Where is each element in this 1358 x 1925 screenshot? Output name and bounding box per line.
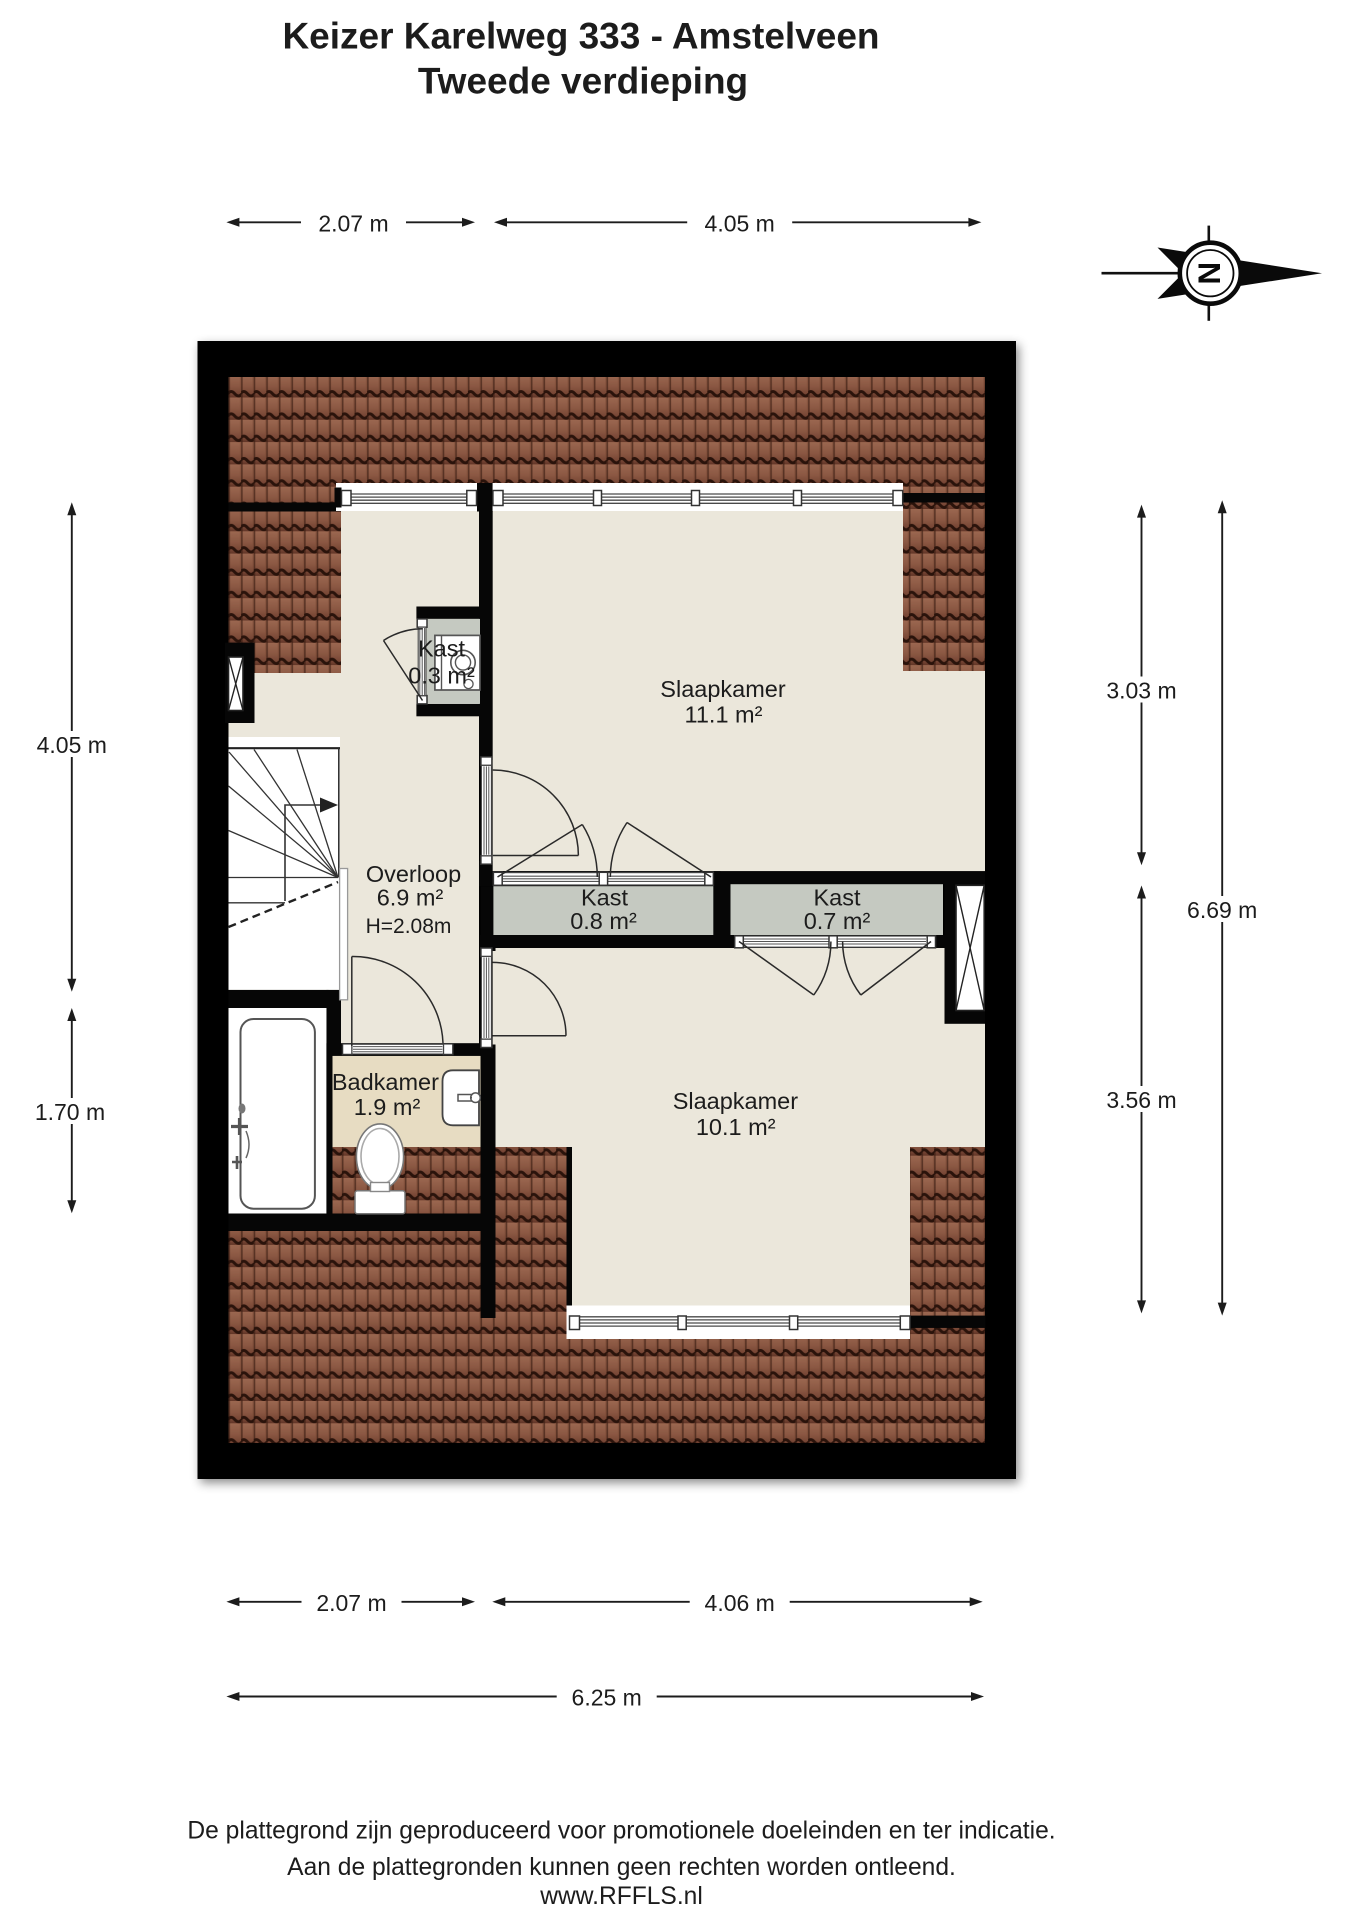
svg-text:4.05 m: 4.05 m: [705, 210, 775, 236]
svg-text:N: N: [1191, 262, 1227, 285]
svg-text:www.RFFLS.nl: www.RFFLS.nl: [539, 1883, 703, 1910]
svg-text:6.25 m: 6.25 m: [572, 1685, 642, 1711]
svg-text:0.7 m²: 0.7 m²: [804, 908, 871, 934]
svg-text:Keizer Karelweg 333 - Amstelve: Keizer Karelweg 333 - Amstelveen: [282, 16, 879, 57]
svg-text:Kast: Kast: [418, 636, 465, 662]
svg-text:Tweede verdieping: Tweede verdieping: [418, 61, 748, 102]
svg-text:H=2.08m: H=2.08m: [366, 915, 452, 938]
svg-text:De plattegrond zijn geproducee: De plattegrond zijn geproduceerd voor pr…: [187, 1818, 1055, 1845]
svg-text:Kast: Kast: [581, 885, 628, 911]
svg-text:11.1 m²: 11.1 m²: [685, 702, 763, 728]
svg-text:10.1 m²: 10.1 m²: [696, 1114, 776, 1140]
svg-text:Aan de plattegronden kunnen ge: Aan de plattegronden kunnen geen rechten…: [287, 1854, 956, 1881]
svg-text:0.8 m²: 0.8 m²: [570, 908, 637, 934]
svg-text:3.03 m: 3.03 m: [1106, 678, 1176, 704]
svg-text:2.07 m: 2.07 m: [318, 210, 388, 236]
svg-text:Overloop: Overloop: [366, 861, 461, 887]
svg-text:1.70 m: 1.70 m: [35, 1099, 105, 1125]
svg-text:Slaapkamer: Slaapkamer: [673, 1088, 799, 1114]
svg-text:3.56 m: 3.56 m: [1106, 1087, 1176, 1113]
svg-text:1.9 m²: 1.9 m²: [354, 1094, 421, 1120]
svg-text:Kast: Kast: [813, 885, 860, 911]
svg-text:4.05 m: 4.05 m: [37, 732, 107, 758]
svg-text:6.69 m: 6.69 m: [1187, 897, 1257, 923]
svg-text:2.07 m: 2.07 m: [316, 1590, 386, 1616]
svg-text:Badkamer: Badkamer: [332, 1069, 439, 1095]
svg-text:4.06 m: 4.06 m: [705, 1590, 775, 1616]
svg-text:0.3 m²: 0.3 m²: [408, 663, 475, 689]
svg-text:Slaapkamer: Slaapkamer: [660, 676, 786, 702]
svg-text:6.9 m²: 6.9 m²: [377, 885, 444, 911]
